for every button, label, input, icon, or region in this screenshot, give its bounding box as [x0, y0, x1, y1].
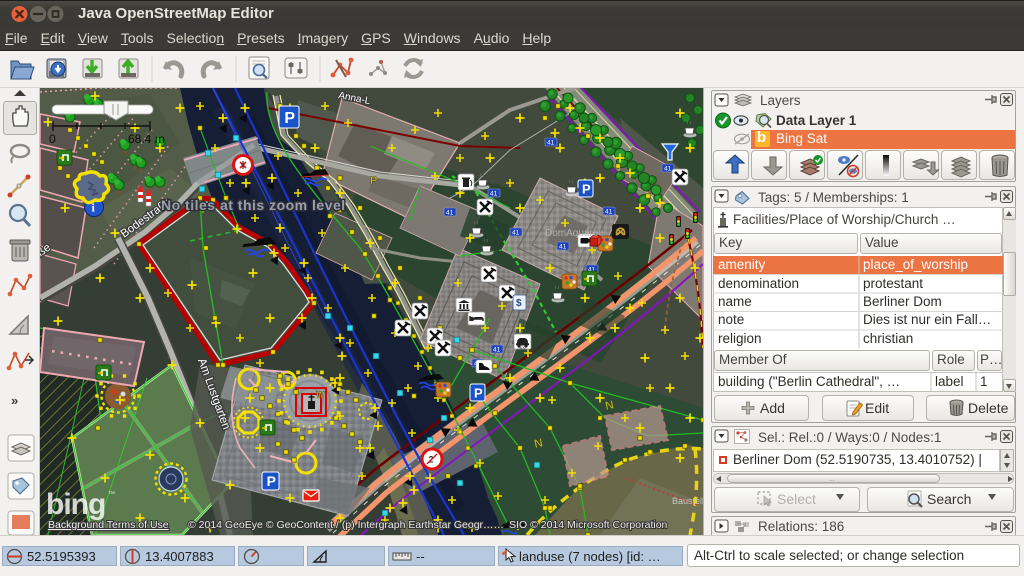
- svg-text:$: $: [516, 298, 522, 309]
- svg-text:41: 41: [493, 347, 501, 354]
- svg-text:41: 41: [605, 209, 613, 216]
- svg-text:™: ™: [108, 491, 115, 498]
- svg-text:No tiles at this zoom level: No tiles at this zoom level: [161, 197, 346, 213]
- svg-text:68.4 m: 68.4 m: [128, 132, 165, 146]
- svg-text:41: 41: [664, 166, 672, 173]
- svg-text:P: P: [267, 473, 276, 489]
- svg-text:W: W: [316, 390, 325, 400]
- svg-text:0: 0: [49, 132, 56, 146]
- svg-text:P: P: [370, 175, 377, 187]
- svg-text:P: P: [582, 181, 591, 196]
- svg-text:P: P: [474, 385, 483, 400]
- svg-text:DomAquaree: DomAquaree: [545, 228, 604, 239]
- svg-text:»: »: [11, 393, 18, 408]
- svg-text:41: 41: [559, 244, 567, 251]
- svg-text:© 2014 GeoEye © GeoContent / (: © 2014 GeoEye © GeoContent / (p) Intergr…: [188, 519, 668, 531]
- svg-text:41: 41: [490, 191, 498, 198]
- svg-text:41: 41: [512, 230, 520, 237]
- svg-text:TAXI: TAXI: [518, 346, 526, 350]
- svg-text:bing: bing: [46, 488, 105, 521]
- svg-text:P: P: [284, 110, 295, 127]
- svg-text:41: 41: [547, 140, 555, 147]
- svg-text:Baustelle: Baustelle: [672, 496, 703, 506]
- svg-text:41: 41: [446, 210, 454, 217]
- svg-text:Background Terms of Use: Background Terms of Use: [48, 519, 169, 531]
